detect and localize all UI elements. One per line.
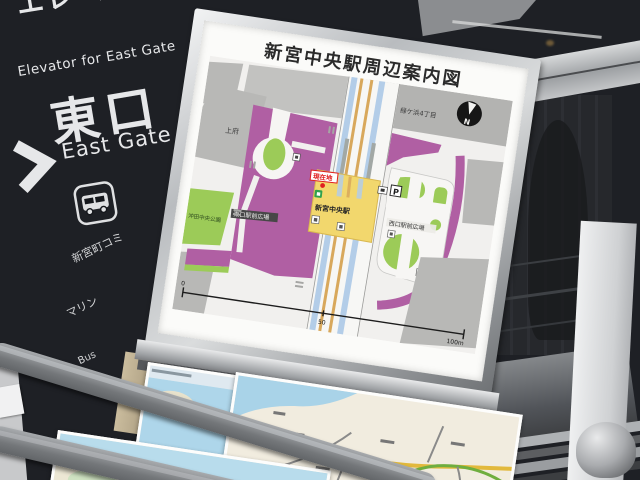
bus-route-label-1: 新宮町コミ [69,228,126,266]
bus-route-label-2: マリン [64,293,101,322]
elevator-label-jp: エレベーター [13,0,197,22]
scale-mid: 50 [317,319,326,327]
station-area-map: 緑ケ浜4丁目 N 上府 沖田中央公園 [172,56,512,354]
wall-plate [0,384,24,418]
warm-light-dot [546,40,554,46]
bus-icon [71,179,119,227]
photo-scene: エレベーター Elevator for East Gate 東口 East Ga… [0,0,640,480]
bollard-dome-cap-icon [576,422,636,478]
bus-route-label-3: Bus [76,349,97,367]
kamifu-label: 上府 [225,126,240,136]
map-lightbox: 新宮中央駅周辺案内図 緑ケ浜4丁目 N 上府 沖田中央公園 [145,8,541,394]
map-panel: 新宮中央駅周辺案内図 緑ケ浜4丁目 N 上府 沖田中央公園 [158,21,529,382]
station-block: 現在地 新宮中央駅 [304,169,381,242]
wall-strip [0,360,28,480]
parking-badge: P [390,185,402,197]
